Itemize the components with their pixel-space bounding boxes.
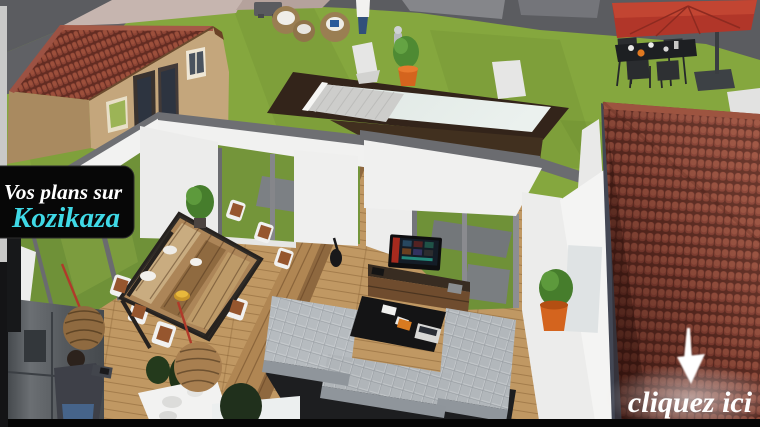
svg-text:cliquez ici: cliquez ici [628,386,753,419]
svg-text:Vos plans sur: Vos plans sur [4,180,123,204]
svg-text:Kozikaza: Kozikaza [11,202,120,234]
